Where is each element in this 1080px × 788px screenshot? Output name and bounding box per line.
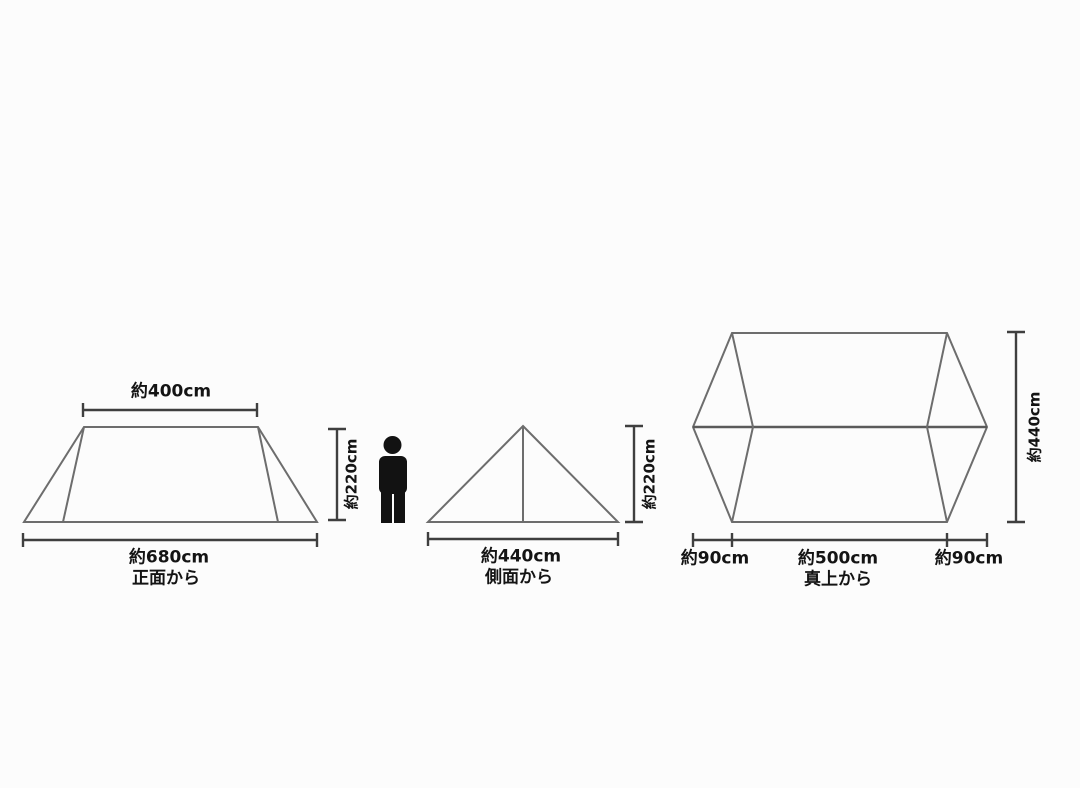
front-view-figure [23,403,346,547]
top-depth-dimension-line [1007,332,1025,522]
top-center-width-label: 約500cm [798,551,878,568]
front-view-outline [24,427,317,522]
front-view-label: 正面から [132,571,200,588]
top-right-width-label: 約90cm [935,551,1003,568]
front-view-fold-lines [63,427,278,522]
dimension-diagram: 約400cm 約680cm 正面から 約220cm 約440cm 側面から 約2… [0,0,1080,788]
side-view-figure [428,426,643,546]
top-left-width-label: 約90cm [681,551,749,568]
side-height-label: 約220cm [643,439,658,510]
side-bottom-width-label: 約440cm [481,549,561,566]
top-view-figure [693,332,1025,547]
top-width-dimension-line [693,533,987,547]
side-view-label: 側面から [485,570,553,587]
front-height-label: 約220cm [345,439,360,510]
front-top-width-dimension-line [83,403,257,417]
side-bottom-width-dimension-line [428,532,618,546]
front-bottom-width-dimension-line [23,533,317,547]
top-depth-label: 約440cm [1028,392,1043,463]
person-icon [379,436,407,523]
top-view-label: 真上から [804,572,872,589]
front-bottom-width-label: 約680cm [129,550,209,567]
front-top-width-label: 約400cm [131,384,211,401]
